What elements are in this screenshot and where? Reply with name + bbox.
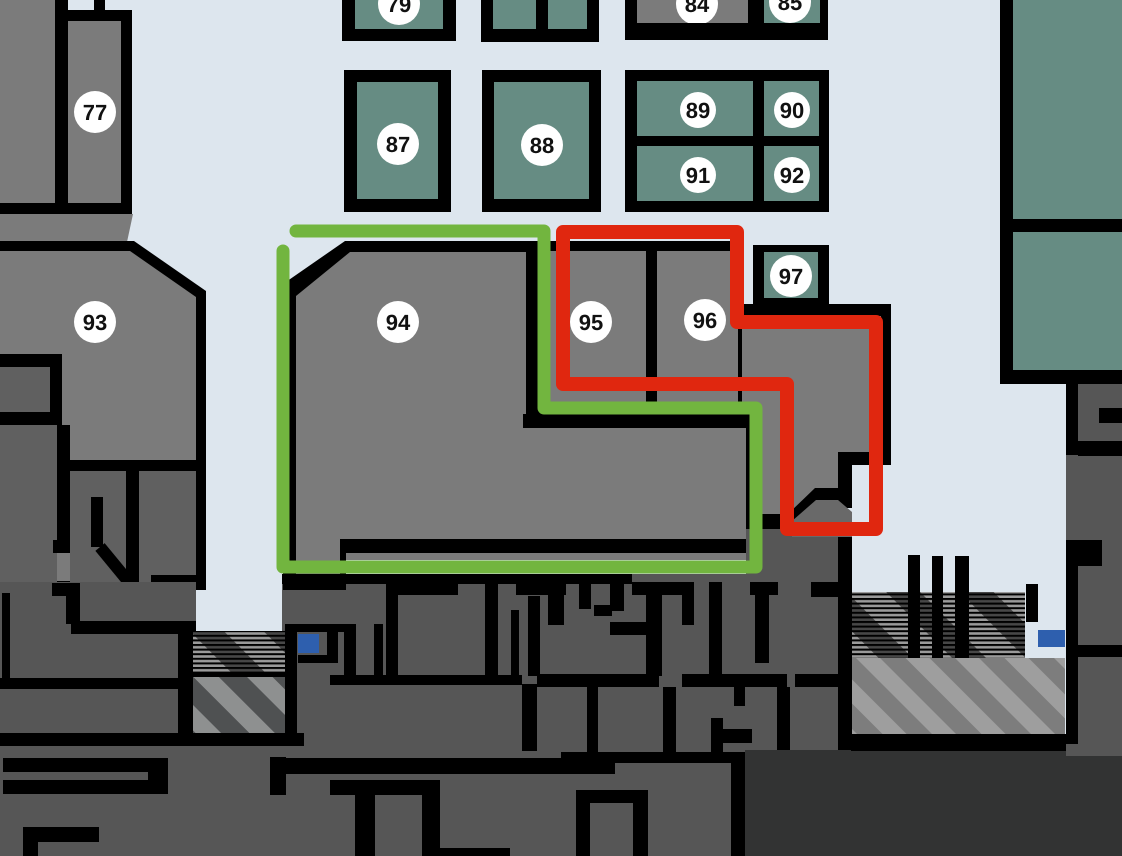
svg-text:79: 79 bbox=[387, 0, 411, 17]
svg-text:92: 92 bbox=[780, 163, 804, 188]
svg-text:94: 94 bbox=[386, 310, 411, 335]
svg-text:95: 95 bbox=[579, 310, 603, 335]
svg-text:96: 96 bbox=[693, 308, 717, 333]
svg-text:77: 77 bbox=[83, 100, 107, 125]
svg-text:89: 89 bbox=[686, 98, 710, 123]
svg-text:87: 87 bbox=[386, 132, 410, 157]
svg-text:91: 91 bbox=[686, 163, 710, 188]
svg-text:88: 88 bbox=[530, 133, 554, 158]
svg-text:93: 93 bbox=[83, 310, 107, 335]
svg-text:85: 85 bbox=[778, 0, 802, 15]
svg-text:84: 84 bbox=[685, 0, 710, 17]
svg-text:90: 90 bbox=[780, 98, 804, 123]
svg-text:97: 97 bbox=[779, 264, 803, 289]
